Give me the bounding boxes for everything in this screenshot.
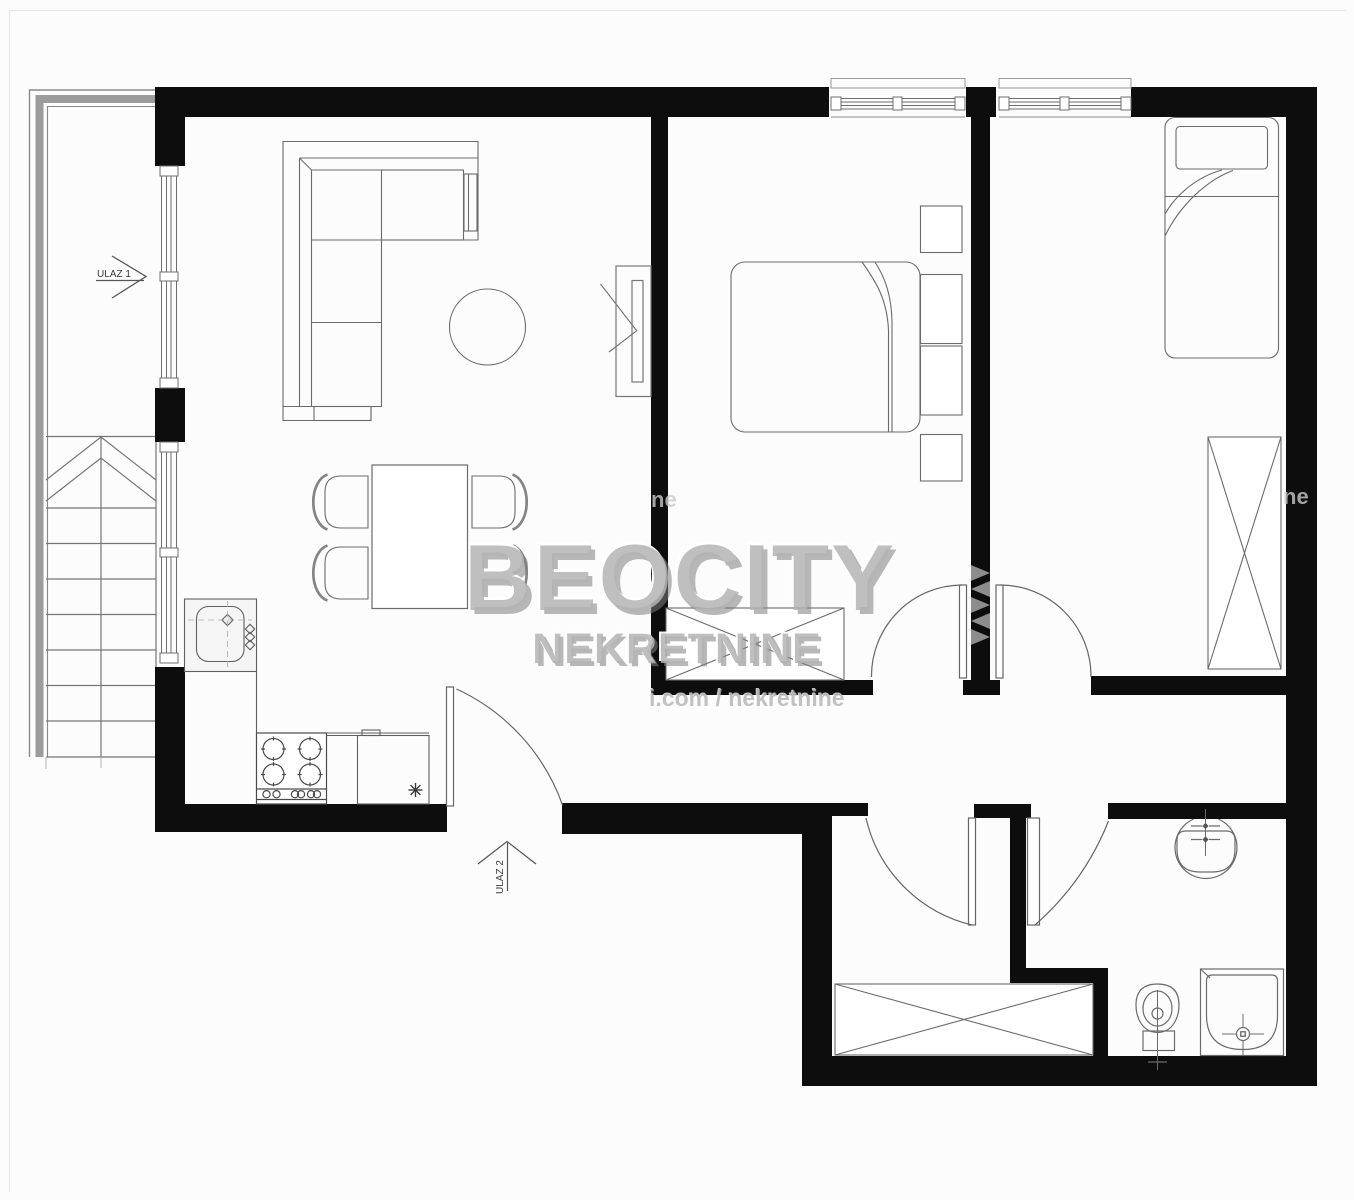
svg-text:NEKRETNINE: NEKRETNINE: [532, 625, 822, 673]
svg-text:ULAZ 2: ULAZ 2: [495, 860, 506, 894]
svg-text:ULAZ 1: ULAZ 1: [97, 269, 131, 280]
svg-text:BEOCITY: BEOCITY: [464, 525, 896, 630]
svg-text:ne: ne: [651, 487, 677, 512]
svg-text:ne: ne: [1283, 484, 1309, 509]
svg-text:i.com / nekretnine: i.com / nekretnine: [649, 685, 845, 711]
